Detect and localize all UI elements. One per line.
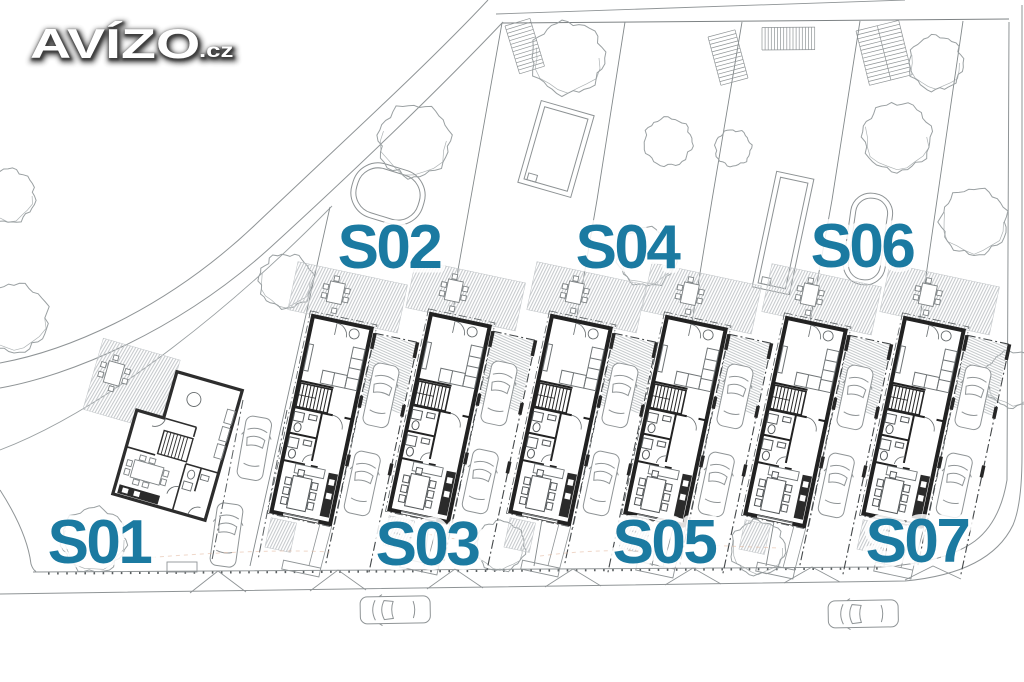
- svg-text:S01: S01: [48, 508, 152, 577]
- svg-text:S06: S06: [811, 212, 915, 281]
- svg-text:S05: S05: [613, 508, 717, 577]
- svg-text:S02: S02: [338, 213, 441, 282]
- svg-text:AVÍZO: AVÍZO: [30, 20, 200, 67]
- svg-text:S04: S04: [576, 213, 682, 282]
- svg-text:.cz: .cz: [199, 39, 233, 61]
- svg-text:S03: S03: [376, 510, 480, 579]
- svg-text:S07: S07: [866, 507, 969, 576]
